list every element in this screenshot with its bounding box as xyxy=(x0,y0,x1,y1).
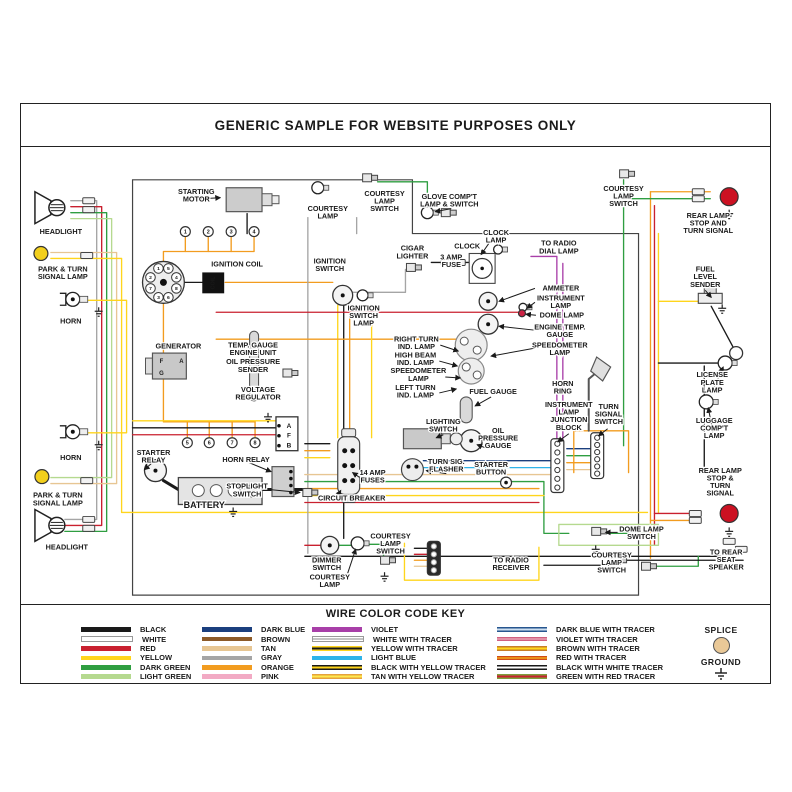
component-label: IGNITION COIL xyxy=(211,260,263,269)
symbol-horn xyxy=(60,425,88,439)
component-label: PARK & TURNSIGNAL LAMP xyxy=(33,491,83,508)
symbol-horn xyxy=(60,292,88,306)
wire-color-swatch xyxy=(81,665,131,670)
component-label: ENGINE TEMP.GAUGE xyxy=(534,322,585,339)
component-label: HORN RELAY xyxy=(222,455,270,464)
wire-color-swatch xyxy=(497,637,547,642)
symbol-plug xyxy=(363,174,378,182)
legend-column: DARK BLUEBROWNTANGRAYORANGEPINK xyxy=(202,625,305,681)
legend-row: ORANGE xyxy=(202,663,305,672)
legend-label: BLACK xyxy=(140,625,166,634)
legend-row: LIGHT GREEN xyxy=(81,672,191,681)
wire-color-swatch xyxy=(202,656,252,661)
legend-row: DARK GREEN xyxy=(81,663,191,672)
wiring-diagram-svg: 15247836COIL12345678AFBFAG+− HEADLIGHTPA… xyxy=(21,148,770,604)
svg-text:5: 5 xyxy=(186,441,189,447)
component-labels: HEADLIGHTPARK & TURNSIGNAL LAMPHORNHORNP… xyxy=(33,184,745,589)
symbol-lamp xyxy=(357,290,373,301)
svg-text:2: 2 xyxy=(149,275,152,281)
svg-text:A: A xyxy=(179,359,184,365)
wire-color-swatch xyxy=(497,665,547,670)
component-label: COURTESYLAMP xyxy=(310,572,351,589)
symbol-conn xyxy=(689,517,701,523)
svg-text:3: 3 xyxy=(157,295,160,301)
component-label: CLOCKLAMP xyxy=(483,228,510,245)
legend-label: BLACK WITH WHITE TRACER xyxy=(556,663,663,672)
legend-column: BLACKWHITEREDYELLOWDARK GREENLIGHT GREEN xyxy=(81,625,191,681)
splice-ground-block: SPLICE GROUND xyxy=(676,625,766,680)
symbol-numc: 6 xyxy=(204,438,214,448)
legend-row: BROWN xyxy=(202,634,305,643)
symbol-conn xyxy=(83,525,95,531)
component-label: HEADLIGHT xyxy=(46,543,89,552)
legend-label: BROWN xyxy=(261,635,290,644)
symbol-gnd xyxy=(229,507,237,516)
wire-color-swatch xyxy=(312,636,364,642)
splice-label: SPLICE xyxy=(676,625,766,635)
symbol-plug xyxy=(406,263,421,271)
component-label: IGNITIONSWITCHLAMP xyxy=(347,303,379,327)
symbol-plug xyxy=(592,527,607,535)
component-label: COURTESYLAMPSWITCH xyxy=(603,184,644,208)
symbol-clock xyxy=(469,253,495,283)
component-label: LUGGAGECOMP'TLAMP xyxy=(696,416,733,440)
component-label: INSTRUMENTLAMPJUNCTIONBLOCK xyxy=(545,400,593,432)
leader-arrow xyxy=(249,463,271,472)
legend-row: TAN WITH YELLOW TRACER xyxy=(312,672,486,681)
diagram-frame: GENERIC SAMPLE FOR WEBSITE PURPOSES ONLY… xyxy=(20,103,771,684)
legend: WIRE COLOR CODE KEY BLACKWHITEREDYELLOWD… xyxy=(21,604,770,684)
component-label: LICENSEPLATELAMP xyxy=(696,370,728,394)
leader-arrow xyxy=(499,288,535,301)
symbol-conn xyxy=(689,510,701,516)
component-label: FUELLEVELSENDER xyxy=(690,265,721,289)
wire xyxy=(163,481,178,490)
symbol-sender xyxy=(698,287,722,303)
legend-row: RED WITH TRACER xyxy=(497,653,663,662)
wiring-diagram-page: GENERIC SAMPLE FOR WEBSITE PURPOSES ONLY… xyxy=(0,0,792,792)
symbol-conn xyxy=(81,478,93,484)
svg-text:3: 3 xyxy=(230,230,233,236)
legend-label: GREEN WITH RED TRACER xyxy=(556,672,655,681)
wire xyxy=(81,300,127,432)
leader-arrow xyxy=(445,377,460,378)
legend-label: LIGHT BLUE xyxy=(371,653,416,662)
component-label: AMMETER xyxy=(542,284,579,293)
component-label: INSTRUMENTLAMP xyxy=(537,294,585,311)
symbol-gauge xyxy=(321,536,339,554)
legend-row: WHITE WITH TRACER xyxy=(312,634,486,643)
component-label: IGNITIONSWITCH xyxy=(314,257,346,274)
splice-icon xyxy=(713,637,730,654)
symbol-ringpad xyxy=(591,357,611,381)
legend-row: BLACK xyxy=(81,625,191,634)
wire xyxy=(163,238,185,263)
wire xyxy=(65,201,97,520)
svg-text:6: 6 xyxy=(167,295,170,301)
component-label: HORNRING xyxy=(552,379,573,396)
ground-label: GROUND xyxy=(676,657,766,667)
component-label: SPEEDOMETERLAMP xyxy=(391,366,447,383)
component-label: TO RADIODIAL LAMP xyxy=(539,239,579,256)
wire-color-swatch xyxy=(312,627,362,632)
component-label: STARTERRELAY xyxy=(137,448,172,465)
symbol-coil: COIL xyxy=(202,272,224,293)
wire-color-swatch xyxy=(312,665,362,670)
component-label: DOME LAMPSWITCH xyxy=(619,525,664,542)
title-bar: GENERIC SAMPLE FOR WEBSITE PURPOSES ONLY xyxy=(21,104,770,147)
svg-text:COIL: COIL xyxy=(211,276,217,290)
legend-label: VIOLET xyxy=(371,625,398,634)
symbol-dot xyxy=(519,310,526,317)
symbol-numc: 1 xyxy=(180,227,190,237)
wire-color-swatch xyxy=(81,656,131,661)
wire-color-swatch xyxy=(497,656,547,661)
symbol-strip xyxy=(591,433,604,479)
wire-color-swatch xyxy=(202,637,252,642)
component-label: HORN xyxy=(60,316,81,325)
legend-label: GRAY xyxy=(261,653,282,662)
ground-icon xyxy=(712,668,730,680)
symbol-dot xyxy=(35,470,49,484)
legend-label: VIOLET WITH TRACER xyxy=(556,635,638,644)
legend-row: TAN xyxy=(202,644,305,653)
symbol-conn xyxy=(81,252,93,258)
symbol-plug xyxy=(303,489,318,497)
svg-text:7: 7 xyxy=(149,286,152,292)
wires-layer xyxy=(51,180,743,580)
legend-column: VIOLETWHITE WITH TRACERYELLOW WITH TRACE… xyxy=(312,625,486,681)
legend-row: DARK BLUE WITH TRACER xyxy=(497,625,663,634)
legend-label: BROWN WITH TRACER xyxy=(556,644,640,653)
wire-color-swatch xyxy=(202,627,252,632)
legend-row: WHITE xyxy=(81,634,191,643)
legend-label: RED xyxy=(140,644,156,653)
component-label: GLOVE COMP'TLAMP & SWITCH xyxy=(420,192,478,209)
symbol-motor xyxy=(226,188,279,212)
symbol-numc: 7 xyxy=(227,438,237,448)
component-label: STARTERBUTTON xyxy=(474,460,509,477)
wire-color-swatch xyxy=(81,627,131,632)
component-label: VOLTAGEREGULATOR xyxy=(235,385,281,402)
legend-row: YELLOW WITH TRACER xyxy=(312,644,486,653)
symbol-strip xyxy=(427,541,440,575)
legend-title: WIRE COLOR CODE KEY xyxy=(21,608,770,620)
legend-row: YELLOW xyxy=(81,653,191,662)
component-label: TURNSIGNALSWITCH xyxy=(594,402,623,426)
leader-arrow xyxy=(475,397,491,406)
svg-text:7: 7 xyxy=(231,441,234,447)
symbol-plug xyxy=(620,170,635,178)
legend-row: PINK xyxy=(202,672,305,681)
component-label: 14 AMPFUSES xyxy=(360,468,386,485)
wire-color-swatch xyxy=(81,646,131,651)
symbol-lamp xyxy=(351,537,369,550)
svg-text:F: F xyxy=(287,433,291,440)
legend-column: DARK BLUE WITH TRACERVIOLET WITH TRACERB… xyxy=(497,625,663,681)
component-label: REAR LAMPSTOP ANDTURN SIGNAL xyxy=(683,211,733,235)
wire-color-swatch xyxy=(497,627,547,632)
component-label: FUEL GAUGE xyxy=(469,387,517,396)
legend-label: LIGHT GREEN xyxy=(140,672,191,681)
component-label: HIGH BEAMIND. LAMP xyxy=(395,350,437,367)
wire-color-swatch xyxy=(312,646,362,651)
component-label: COURTESYLAMP xyxy=(308,204,349,221)
symbol-headlight xyxy=(35,192,65,224)
svg-text:8: 8 xyxy=(254,441,257,447)
legend-label: DARK BLUE xyxy=(261,625,305,634)
symbol-cluster xyxy=(455,329,487,384)
component-label: HORN xyxy=(60,453,81,462)
legend-label: RED WITH TRACER xyxy=(556,653,626,662)
svg-text:F: F xyxy=(160,359,164,365)
component-label: GENERATOR xyxy=(155,341,202,350)
legend-row: LIGHT BLUE xyxy=(312,653,486,662)
symbol-strip xyxy=(551,439,564,493)
svg-text:B: B xyxy=(287,443,292,450)
svg-text:6: 6 xyxy=(208,441,211,447)
wire-color-swatch xyxy=(202,646,252,651)
symbol-circ xyxy=(730,347,743,360)
legend-label: TAN xyxy=(261,644,276,653)
leader-arrow xyxy=(526,314,536,315)
wire xyxy=(652,556,698,566)
svg-text:2: 2 xyxy=(207,230,210,236)
wire-color-swatch xyxy=(81,636,133,642)
wire-color-swatch xyxy=(202,665,252,670)
legend-row: GREEN WITH RED TRACER xyxy=(497,672,663,681)
wire xyxy=(185,238,254,252)
symbol-numc: 4 xyxy=(249,227,259,237)
symbol-gnd xyxy=(381,572,389,581)
symbol-gnd xyxy=(718,304,726,313)
symbol-dist: 15247836 xyxy=(143,261,185,303)
symbol-dot xyxy=(34,247,48,261)
diagram-canvas: 15247836COIL12345678AFBFAG+− HEADLIGHTPA… xyxy=(21,148,770,604)
legend-row: DARK BLUE xyxy=(202,625,305,634)
symbol-conn xyxy=(83,207,95,213)
svg-text:G: G xyxy=(159,371,164,377)
component-label: SPEEDOMETERLAMP xyxy=(532,340,588,357)
symbol-lamp xyxy=(699,395,718,409)
component-label: CLOCK xyxy=(454,242,481,251)
symbol-numc: 2 xyxy=(203,227,213,237)
component-label: TURN SIG.FLASHER xyxy=(428,457,465,474)
legend-row: RED xyxy=(81,644,191,653)
svg-text:1: 1 xyxy=(184,230,187,236)
component-label: 3 AMPFUSE xyxy=(440,253,462,270)
wire-color-swatch xyxy=(312,674,362,679)
wire-color-swatch xyxy=(312,656,362,661)
legend-label: YELLOW WITH TRACER xyxy=(371,644,458,653)
legend-label: DARK BLUE WITH TRACER xyxy=(556,625,655,634)
symbol-gauge xyxy=(333,285,353,305)
component-label: CIGARLIGHTER xyxy=(396,244,429,261)
symbol-plug xyxy=(283,369,298,377)
svg-text:8: 8 xyxy=(175,286,178,292)
svg-text:4: 4 xyxy=(175,275,178,281)
leader-arrow xyxy=(348,549,356,573)
symbol-numc: 5 xyxy=(182,438,192,448)
component-label: DOME LAMP xyxy=(540,310,585,319)
legend-label: WHITE xyxy=(142,635,166,644)
wire-color-swatch xyxy=(497,674,547,679)
wire-color-swatch xyxy=(497,646,547,651)
component-label: STARTINGMOTOR xyxy=(178,187,215,204)
symbol-gauge xyxy=(478,314,498,334)
symbol-gen: FAG xyxy=(146,353,187,379)
symbol-numc: 3 xyxy=(226,227,236,237)
legend-row: BLACK WITH WHITE TRACER xyxy=(497,663,663,672)
symbol-conn xyxy=(83,198,95,204)
wire-color-swatch xyxy=(81,674,131,679)
component-label: TO REARSEATSPEAKER xyxy=(709,547,745,571)
component-label: TEMP. GAUGEENGINE UNIT xyxy=(228,340,278,357)
legend-row: VIOLET xyxy=(312,625,486,634)
symbol-conn xyxy=(723,538,735,544)
leader-arrow xyxy=(499,326,535,330)
component-label: PARK & TURNSIGNAL LAMP xyxy=(38,265,88,282)
component-label: RIGHT TURNIND. LAMP xyxy=(394,334,439,351)
svg-text:A: A xyxy=(287,423,292,430)
symbol-dot xyxy=(720,504,738,522)
component-label: DIMMERSWITCH xyxy=(312,555,342,572)
legend-label: DARK GREEN xyxy=(140,663,190,672)
symbol-pill xyxy=(460,397,472,423)
component-label: HEADLIGHT xyxy=(40,227,83,236)
symbol-dot xyxy=(720,188,738,206)
symbol-plug xyxy=(381,556,396,564)
component-label: REAR LAMPSTOP &TURNSIGNAL xyxy=(699,466,742,498)
legend-label: BLACK WITH YELLOW TRACER xyxy=(371,663,486,672)
legend-row: BLACK WITH YELLOW TRACER xyxy=(312,663,486,672)
component-label: COURTESYLAMPSWITCH xyxy=(364,189,405,213)
symbol-fuseblock xyxy=(338,429,360,503)
leader-arrow xyxy=(439,389,456,393)
component-label: LIGHTINGSWITCH xyxy=(426,417,461,434)
component-label: OIL PRESSURESENDER xyxy=(226,357,280,374)
page-title: GENERIC SAMPLE FOR WEBSITE PURPOSES ONLY xyxy=(215,118,577,133)
symbols-layer: 15247836COIL12345678AFBFAG+− xyxy=(34,170,747,581)
symbol-reg: AFB xyxy=(276,417,298,451)
symbol-conn xyxy=(692,196,704,202)
component-label: TO RADIORECEIVER xyxy=(492,555,530,572)
legend-label: WHITE WITH TRACER xyxy=(373,635,452,644)
wire-color-swatch xyxy=(202,674,252,679)
component-label: BATTERY xyxy=(184,500,225,510)
symbol-plug xyxy=(642,562,657,570)
legend-label: TAN WITH YELLOW TRACER xyxy=(371,672,474,681)
wire xyxy=(352,269,406,292)
component-label: OILPRESSUREGAUGE xyxy=(478,426,518,450)
symbol-numc: 8 xyxy=(250,438,260,448)
legend-label: ORANGE xyxy=(261,663,294,672)
legend-label: PINK xyxy=(261,672,279,681)
symbol-gauge xyxy=(479,292,497,310)
legend-row: BROWN WITH TRACER xyxy=(497,644,663,653)
symbol-flasher xyxy=(401,459,423,481)
legend-label: YELLOW xyxy=(140,653,172,662)
symbol-conn xyxy=(83,516,95,522)
leader-arrow xyxy=(491,348,535,356)
component-label: LEFT TURNIND. LAMP xyxy=(395,383,435,400)
symbol-button xyxy=(501,477,512,488)
symbol-conn xyxy=(692,189,704,195)
legend-row: VIOLET WITH TRACER xyxy=(497,634,663,643)
symbol-gnd xyxy=(725,527,733,536)
svg-text:1: 1 xyxy=(157,266,160,272)
svg-text:5: 5 xyxy=(167,266,170,272)
symbol-lamp xyxy=(494,245,508,254)
legend-row: GRAY xyxy=(202,653,305,662)
component-label: CIRCUIT BREAKER xyxy=(318,494,386,503)
symbol-headlight xyxy=(35,509,65,541)
symbol-lamp xyxy=(312,182,329,194)
